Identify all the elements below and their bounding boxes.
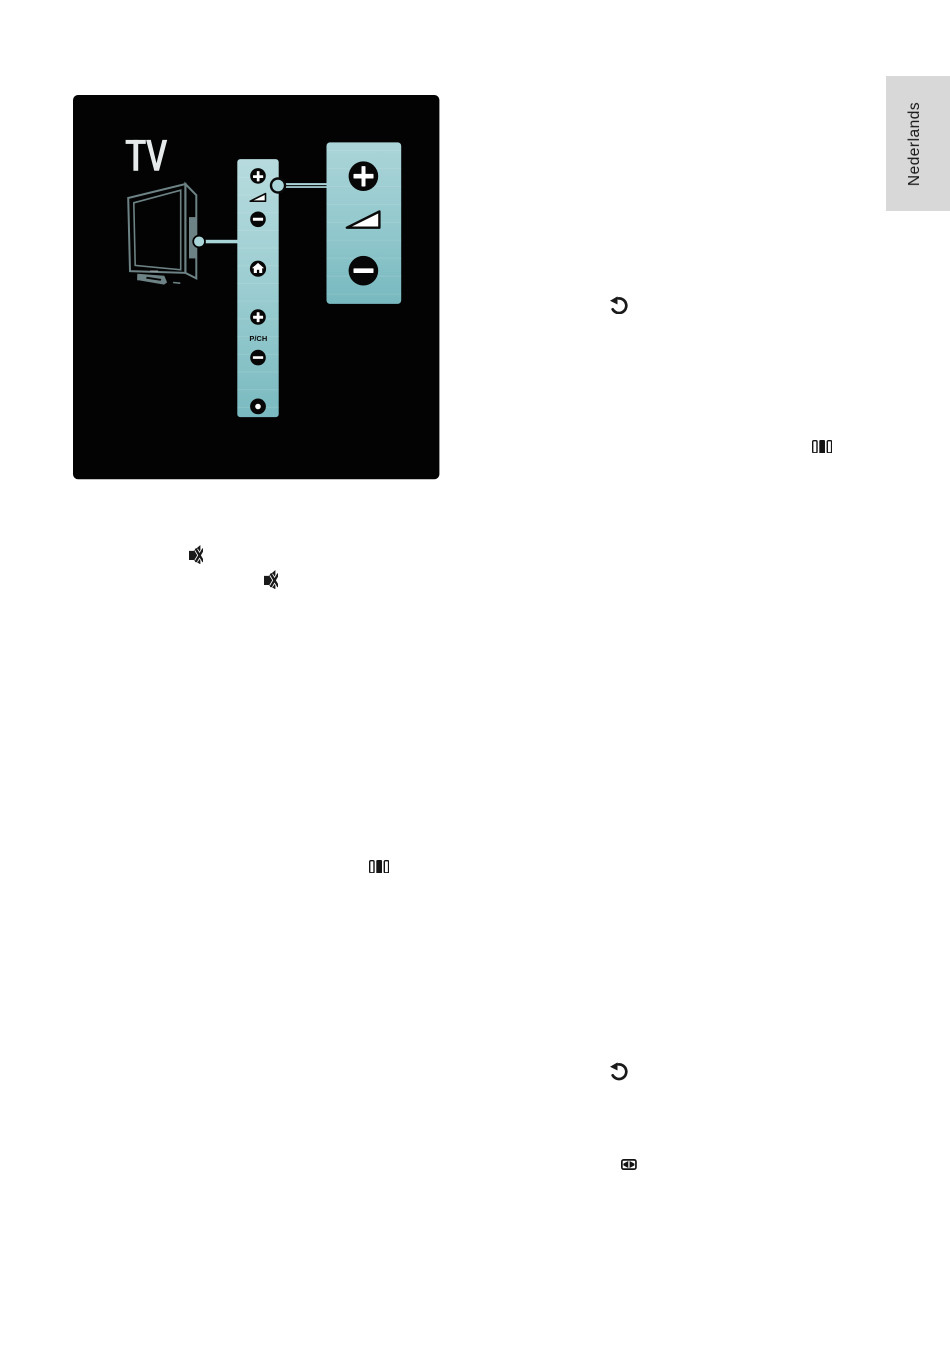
svg-text:P/CH: P/CH — [249, 334, 267, 343]
